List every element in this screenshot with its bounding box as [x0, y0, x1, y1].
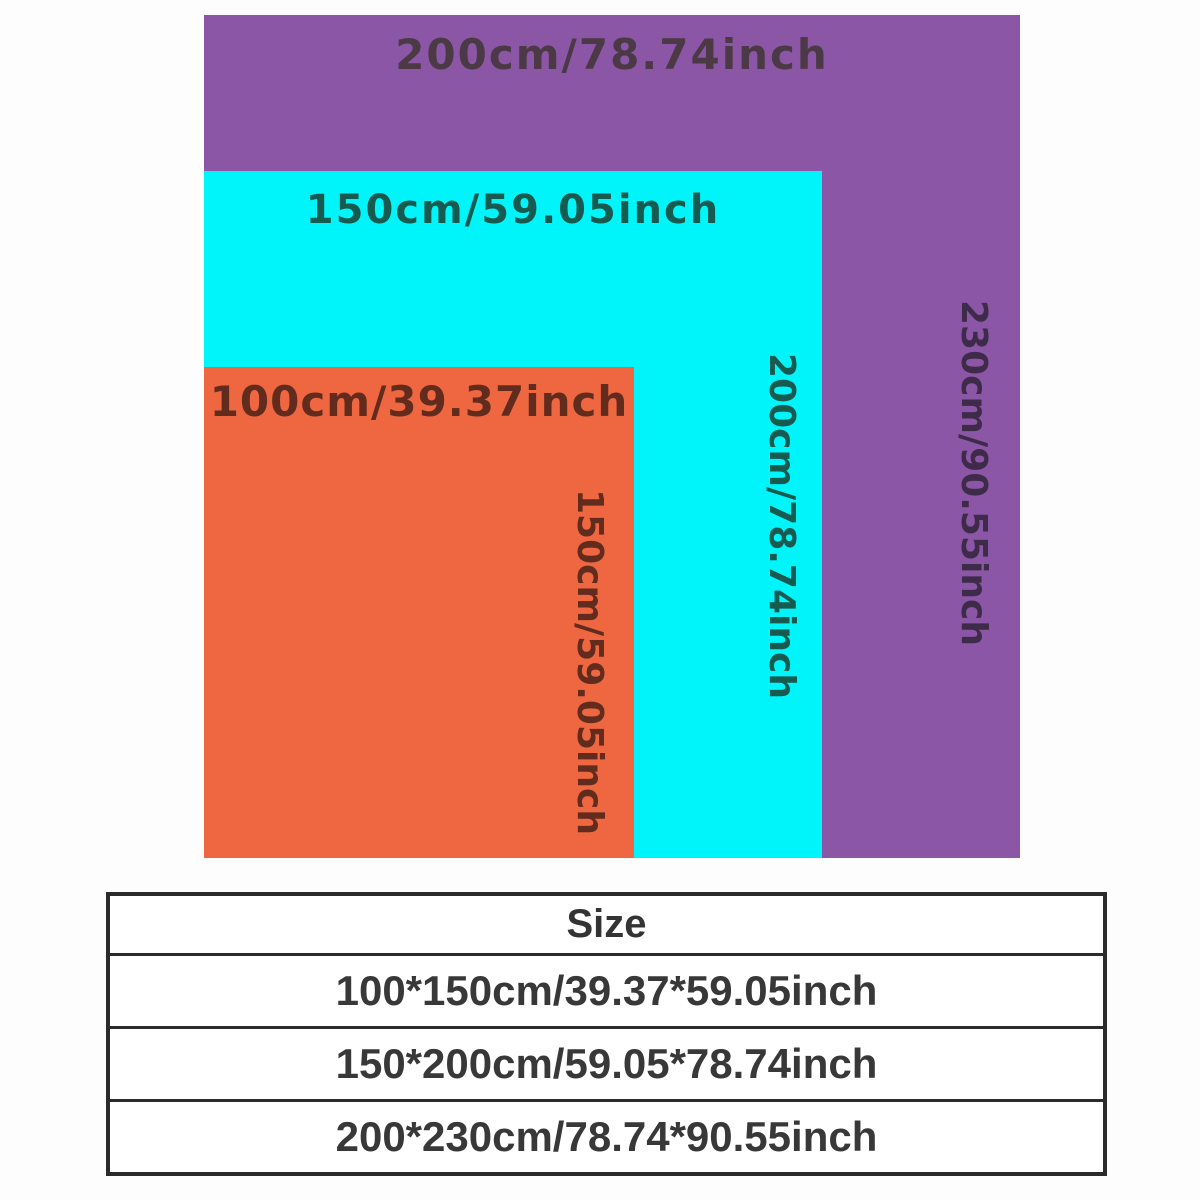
size-table: Size 100*150cm/39.37*59.05inch 150*200cm… [106, 892, 1107, 1176]
medium-width-label: 150cm/59.05inch [204, 187, 822, 233]
large-width-label: 200cm/78.74inch [204, 30, 1020, 79]
medium-height-label: 200cm/78.74inch [761, 353, 802, 699]
size-table-row: 150*200cm/59.05*78.74inch [110, 1026, 1103, 1099]
size-table-row: 100*150cm/39.37*59.05inch [110, 953, 1103, 1026]
size-table-row: 200*230cm/78.74*90.55inch [110, 1099, 1103, 1172]
size-rect-small: 100cm/39.37inch 150cm/59.05inch [204, 367, 634, 858]
size-chart-image: 200cm/78.74inch 230cm/90.55inch 150cm/59… [0, 0, 1200, 1200]
small-width-label: 100cm/39.37inch [204, 377, 634, 426]
large-height-label: 230cm/90.55inch [953, 300, 994, 646]
size-table-header: Size [110, 896, 1103, 953]
small-height-label: 150cm/59.05inch [569, 489, 610, 835]
